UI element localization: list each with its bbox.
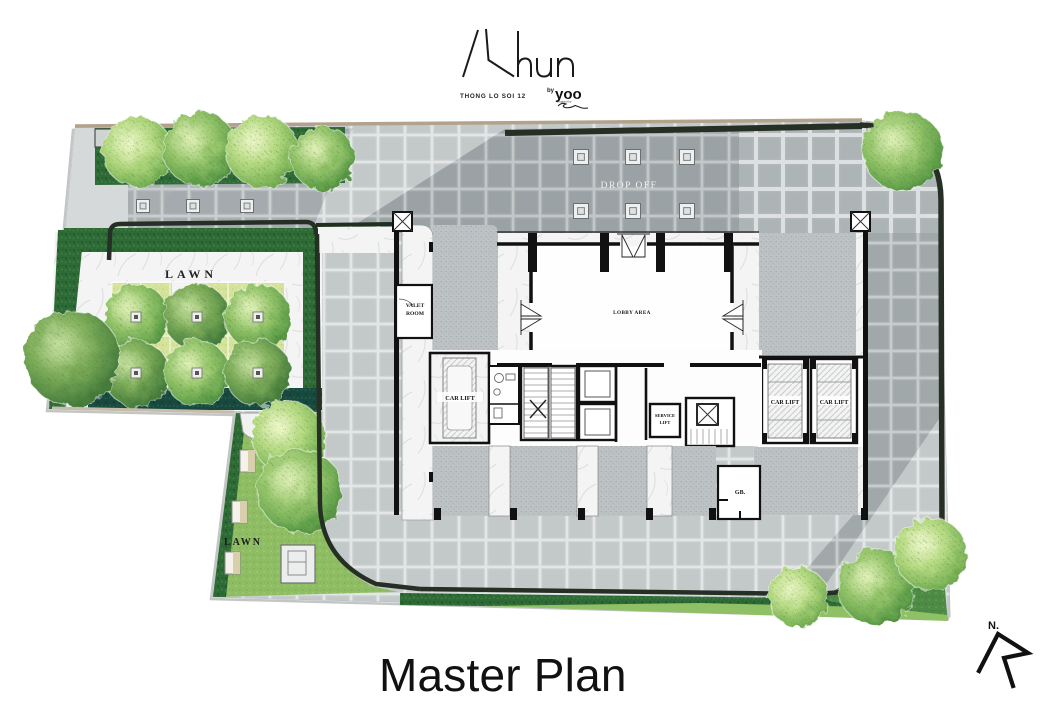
svg-text:LIFT: LIFT — [660, 420, 671, 425]
svg-text:LAWN: LAWN — [224, 537, 262, 548]
svg-text:DROP OFF: DROP OFF — [601, 181, 658, 191]
svg-text:N.: N. — [988, 620, 999, 632]
svg-text:THONG LO SOI 12: THONG LO SOI 12 — [460, 93, 526, 100]
svg-text:CAR LIFT: CAR LIFT — [445, 395, 475, 402]
svg-text:GB.: GB. — [735, 490, 746, 496]
svg-text:LOBBY AREA: LOBBY AREA — [613, 310, 651, 316]
svg-text:CAR LIFT: CAR LIFT — [771, 400, 800, 406]
svg-text:LAWN: LAWN — [165, 267, 217, 281]
svg-text:ROOM: ROOM — [406, 311, 425, 317]
svg-text:CAR LIFT: CAR LIFT — [820, 400, 849, 406]
svg-text:by: by — [547, 88, 555, 94]
svg-text:SERVICE: SERVICE — [655, 413, 675, 418]
svg-text:Master Plan: Master Plan — [379, 649, 627, 701]
svg-text:VALET: VALET — [406, 303, 425, 309]
